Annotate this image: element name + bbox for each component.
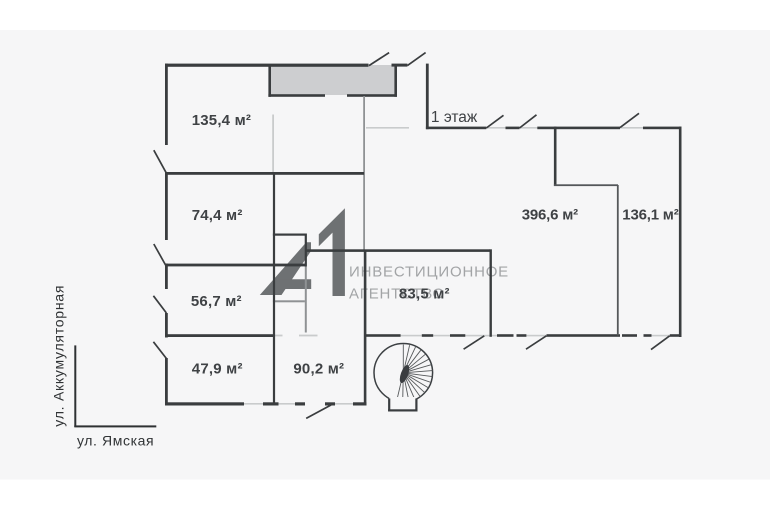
svg-text:90,2 м²: 90,2 м² <box>293 360 344 377</box>
svg-text:56,7 м²: 56,7 м² <box>191 293 242 310</box>
svg-text:135,4 м²: 135,4 м² <box>192 112 251 129</box>
svg-text:47,9 м²: 47,9 м² <box>192 360 243 377</box>
svg-text:ул. Ямская: ул. Ямская <box>77 433 154 449</box>
svg-text:1 этаж: 1 этаж <box>431 109 478 126</box>
svg-text:83,5 м²: 83,5 м² <box>399 286 450 303</box>
svg-text:396,6 м²: 396,6 м² <box>522 207 578 224</box>
svg-text:ул. Аккумуляторная: ул. Аккумуляторная <box>51 285 67 427</box>
svg-text:136,1 м²: 136,1 м² <box>622 207 678 224</box>
svg-text:74,4 м²: 74,4 м² <box>192 207 243 224</box>
svg-text:ИНВЕСТИЦИОННОЕ: ИНВЕСТИЦИОННОЕ <box>349 264 509 281</box>
